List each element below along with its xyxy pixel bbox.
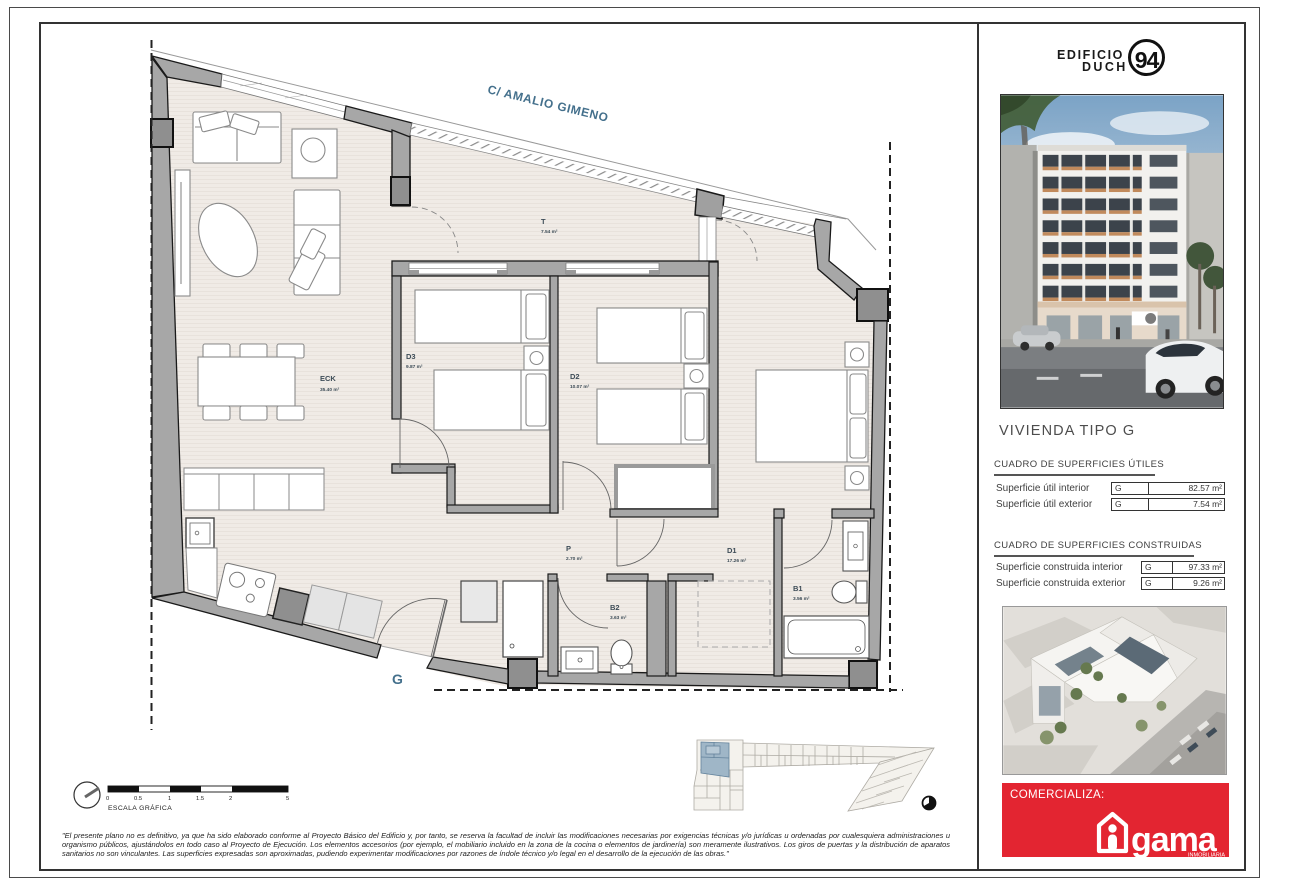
svg-text:G: G (392, 671, 403, 687)
svg-text:D3: D3 (406, 352, 416, 361)
svg-text:2.70 m²: 2.70 m² (566, 556, 583, 562)
svg-text:5: 5 (286, 796, 289, 802)
svg-text:INMOBILIARIA: INMOBILIARIA (1188, 853, 1225, 858)
svg-text:D1: D1 (727, 546, 737, 555)
svg-text:T: T (541, 217, 546, 226)
svg-text:D2: D2 (570, 372, 580, 381)
svg-text:7.54 m²: 7.54 m² (541, 229, 558, 235)
svg-text:9.87 m²: 9.87 m² (406, 364, 423, 370)
svg-text:0.5: 0.5 (134, 796, 142, 802)
svg-text:B2: B2 (610, 603, 620, 612)
svg-text:3.63 m²: 3.63 m² (610, 615, 627, 621)
svg-text:0: 0 (106, 796, 109, 802)
svg-text:ECK: ECK (320, 374, 336, 383)
svg-text:10.07 m²: 10.07 m² (570, 384, 590, 390)
svg-text:2: 2 (229, 796, 232, 802)
svg-text:17.26 m²: 17.26 m² (727, 558, 747, 564)
svg-text:3.56 m²: 3.56 m² (793, 596, 810, 602)
svg-text:P: P (566, 544, 571, 553)
svg-text:35.40 m²: 35.40 m² (320, 387, 340, 393)
svg-text:1: 1 (168, 796, 171, 802)
svg-text:ESCALA GRÁFICA: ESCALA GRÁFICA (108, 803, 172, 812)
svg-text:B1: B1 (793, 584, 803, 593)
svg-text:C/ AMALIO GIMENO: C/ AMALIO GIMENO (486, 82, 610, 125)
svg-text:1.5: 1.5 (196, 796, 204, 802)
